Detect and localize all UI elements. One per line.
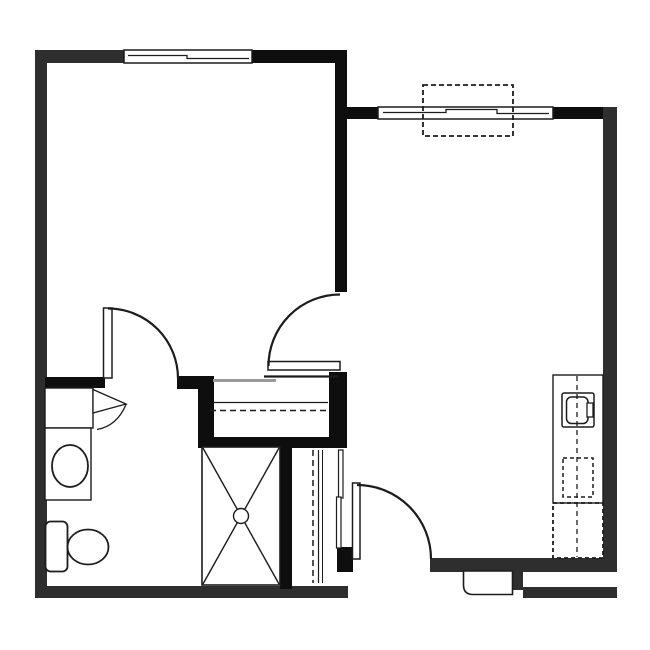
bedroom-window — [124, 50, 252, 63]
refrigerator-dashed — [553, 503, 603, 558]
linen-door-panel-b — [337, 497, 342, 548]
kitchen-faucet — [587, 403, 593, 417]
bathroom-door-leaf — [104, 308, 113, 378]
vanity-wall-bar — [45, 377, 105, 388]
closet-right-wall — [329, 372, 347, 442]
top-wall-left — [35, 50, 125, 63]
shower-drain — [234, 509, 249, 524]
toilet-tank — [46, 522, 68, 572]
vanity-cabinet — [45, 388, 93, 428]
top-wall-mid — [252, 50, 347, 63]
entry-door-arc — [357, 485, 431, 559]
bedroom-door-leaf — [268, 362, 340, 371]
bathroom-sink-basin — [52, 445, 88, 487]
floor-plan-drawing — [0, 0, 650, 650]
kitchen-sink-inner — [567, 397, 589, 424]
bottom-right-lower-wall — [523, 587, 617, 598]
left-wall — [35, 50, 47, 598]
bottom-wall-left — [35, 586, 348, 598]
right-wall — [603, 107, 617, 572]
living-top-wall-left — [347, 107, 379, 119]
toilet-bowl — [68, 530, 109, 565]
linen-door-panel-a — [339, 450, 344, 498]
entry-door-leaf — [353, 483, 361, 559]
shower-partition-wall — [280, 443, 292, 589]
vanity-door-wedge — [93, 390, 126, 414]
bottom-wall-right — [430, 558, 617, 572]
entry-stoop — [464, 571, 513, 595]
bathroom-door-arc — [108, 309, 178, 379]
bedroom-living-wall — [335, 50, 347, 292]
floor-plan — [0, 0, 650, 650]
bedroom-door-arc — [269, 295, 341, 367]
entry-door-jamb — [337, 547, 353, 572]
